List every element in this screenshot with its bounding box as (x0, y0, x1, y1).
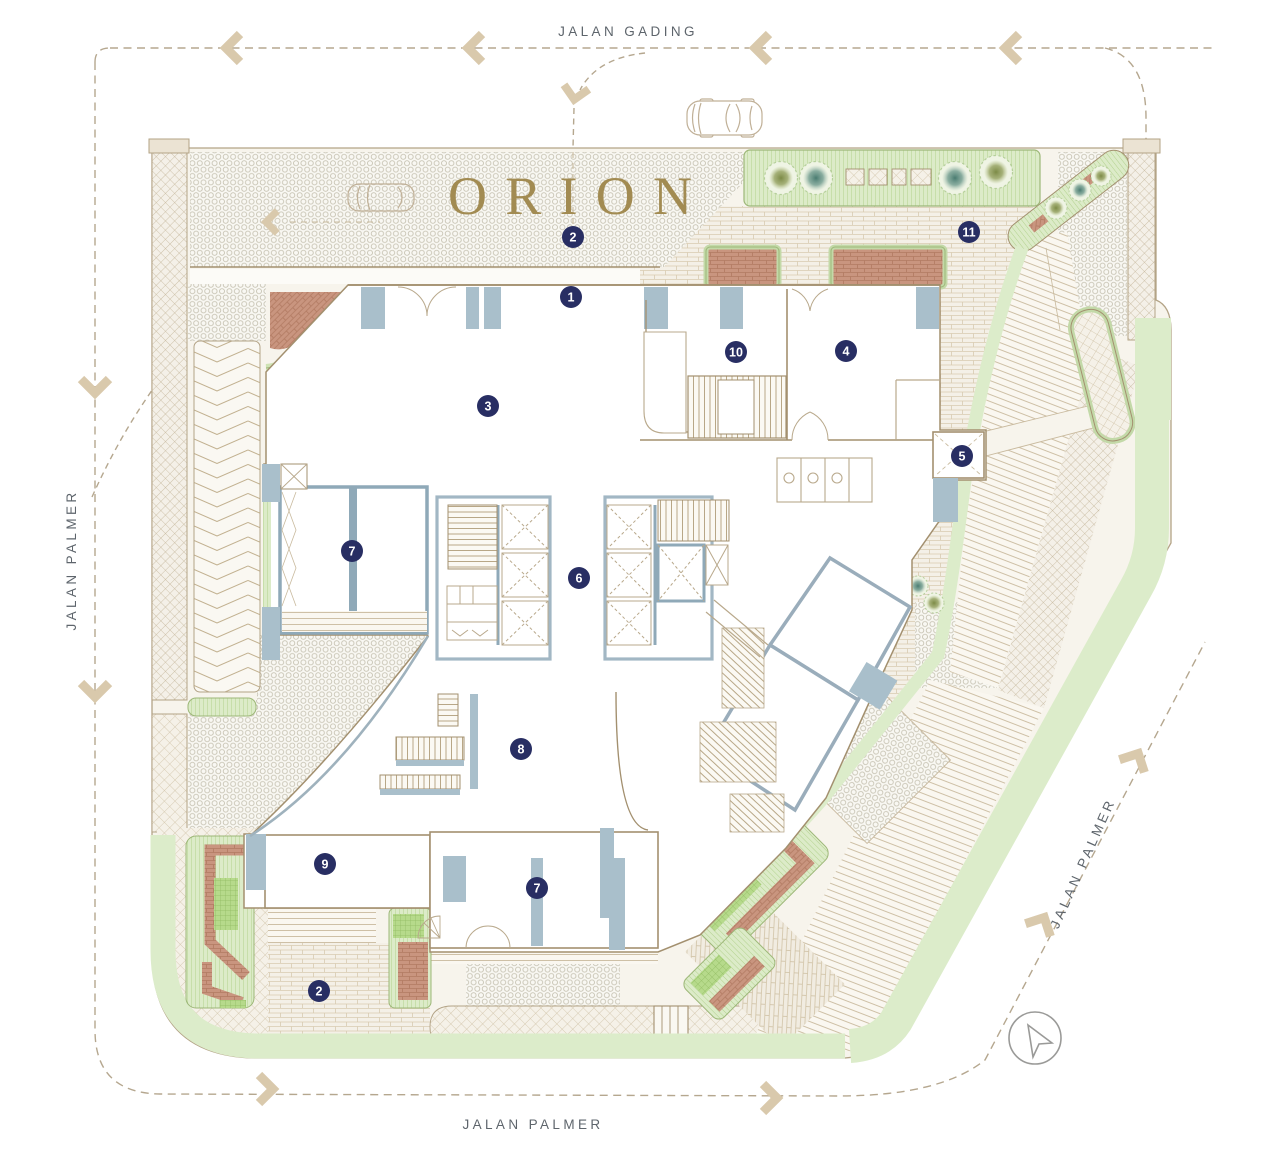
svg-text:3: 3 (485, 400, 492, 414)
svg-text:10: 10 (729, 346, 743, 360)
svg-text:5: 5 (959, 450, 966, 464)
svg-text:7: 7 (349, 545, 356, 559)
svg-text:JALAN GADING: JALAN GADING (558, 24, 698, 39)
svg-text:JALAN PALMER: JALAN PALMER (462, 1117, 603, 1132)
svg-text:1: 1 (568, 291, 575, 305)
svg-text:9: 9 (322, 858, 329, 872)
svg-text:2: 2 (316, 985, 323, 999)
svg-text:11: 11 (962, 226, 975, 240)
svg-text:4: 4 (843, 345, 850, 359)
svg-text:ORION: ORION (448, 166, 692, 226)
svg-text:8: 8 (518, 743, 525, 757)
svg-text:JALAN PALMER: JALAN PALMER (64, 489, 79, 630)
svg-text:7: 7 (534, 882, 541, 896)
svg-text:6: 6 (576, 572, 583, 586)
svg-text:2: 2 (570, 231, 577, 245)
